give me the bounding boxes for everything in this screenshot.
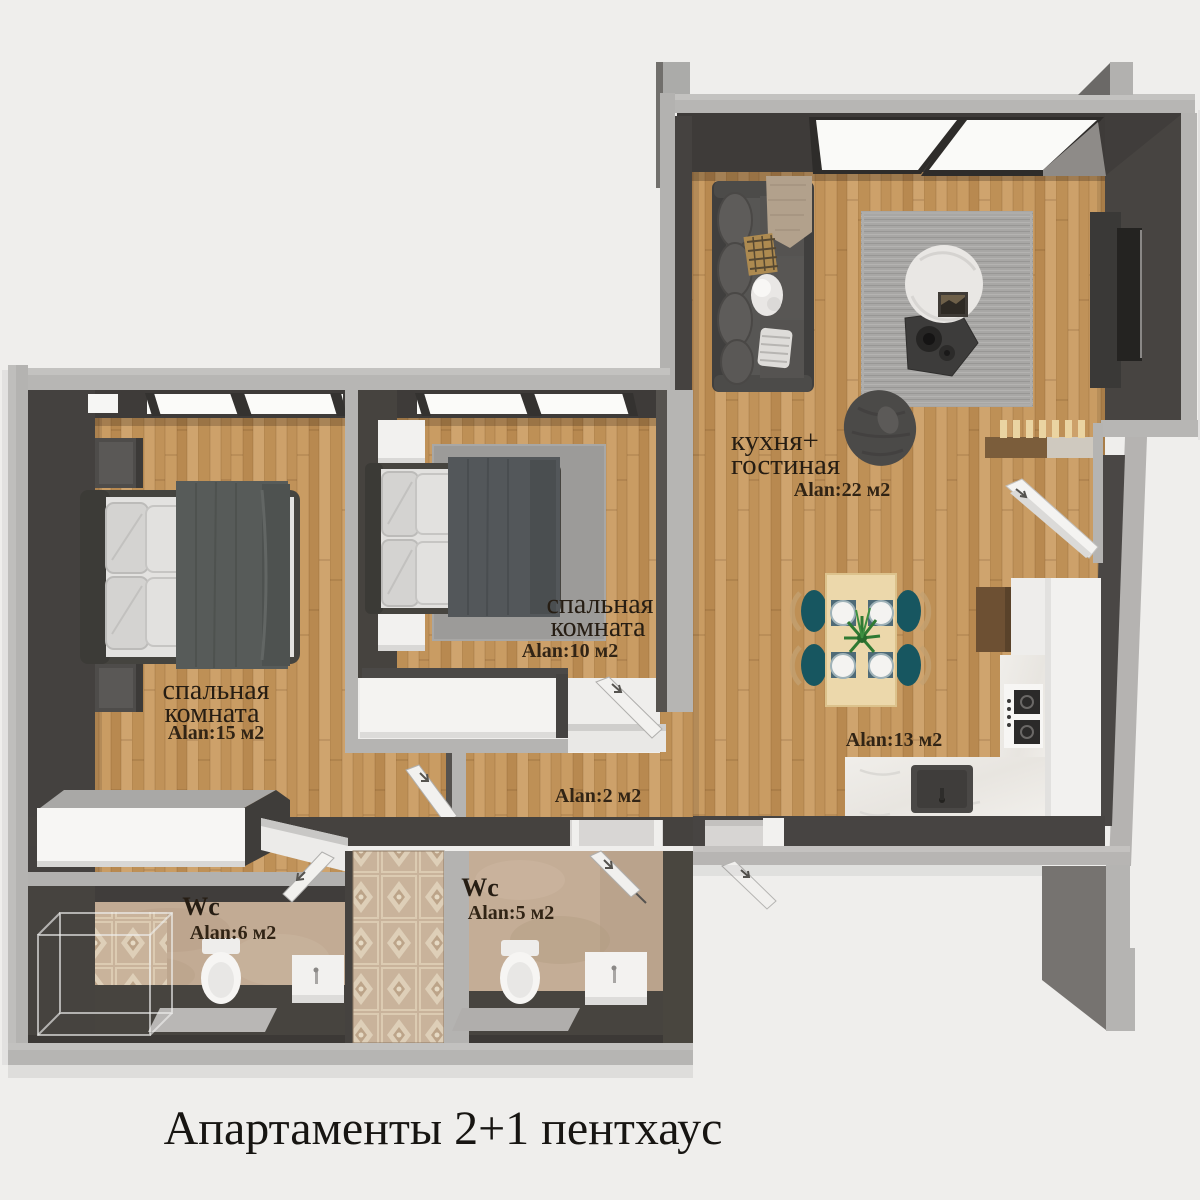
svg-text:Alan:22 м2: Alan:22 м2 — [794, 479, 890, 501]
svg-text:Alan:6 м2: Alan:6 м2 — [190, 922, 276, 944]
svg-text:гостиная: гостиная — [731, 449, 840, 481]
svg-text:комната: комната — [550, 612, 646, 643]
svg-text:Alan:5 м2: Alan:5 м2 — [468, 902, 554, 924]
svg-text:Alan:15 м2: Alan:15 м2 — [168, 722, 264, 744]
svg-text:Апартаменты 2+1 пентхаус: Апартаменты 2+1 пентхаус — [164, 1102, 723, 1155]
svg-text:Alan:10 м2: Alan:10 м2 — [522, 640, 618, 662]
svg-text:Wc: Wc — [461, 873, 499, 902]
svg-text:Alan:2 м2: Alan:2 м2 — [555, 785, 641, 807]
svg-text:Alan:13 м2: Alan:13 м2 — [846, 729, 942, 751]
svg-text:Wc: Wc — [182, 892, 220, 921]
